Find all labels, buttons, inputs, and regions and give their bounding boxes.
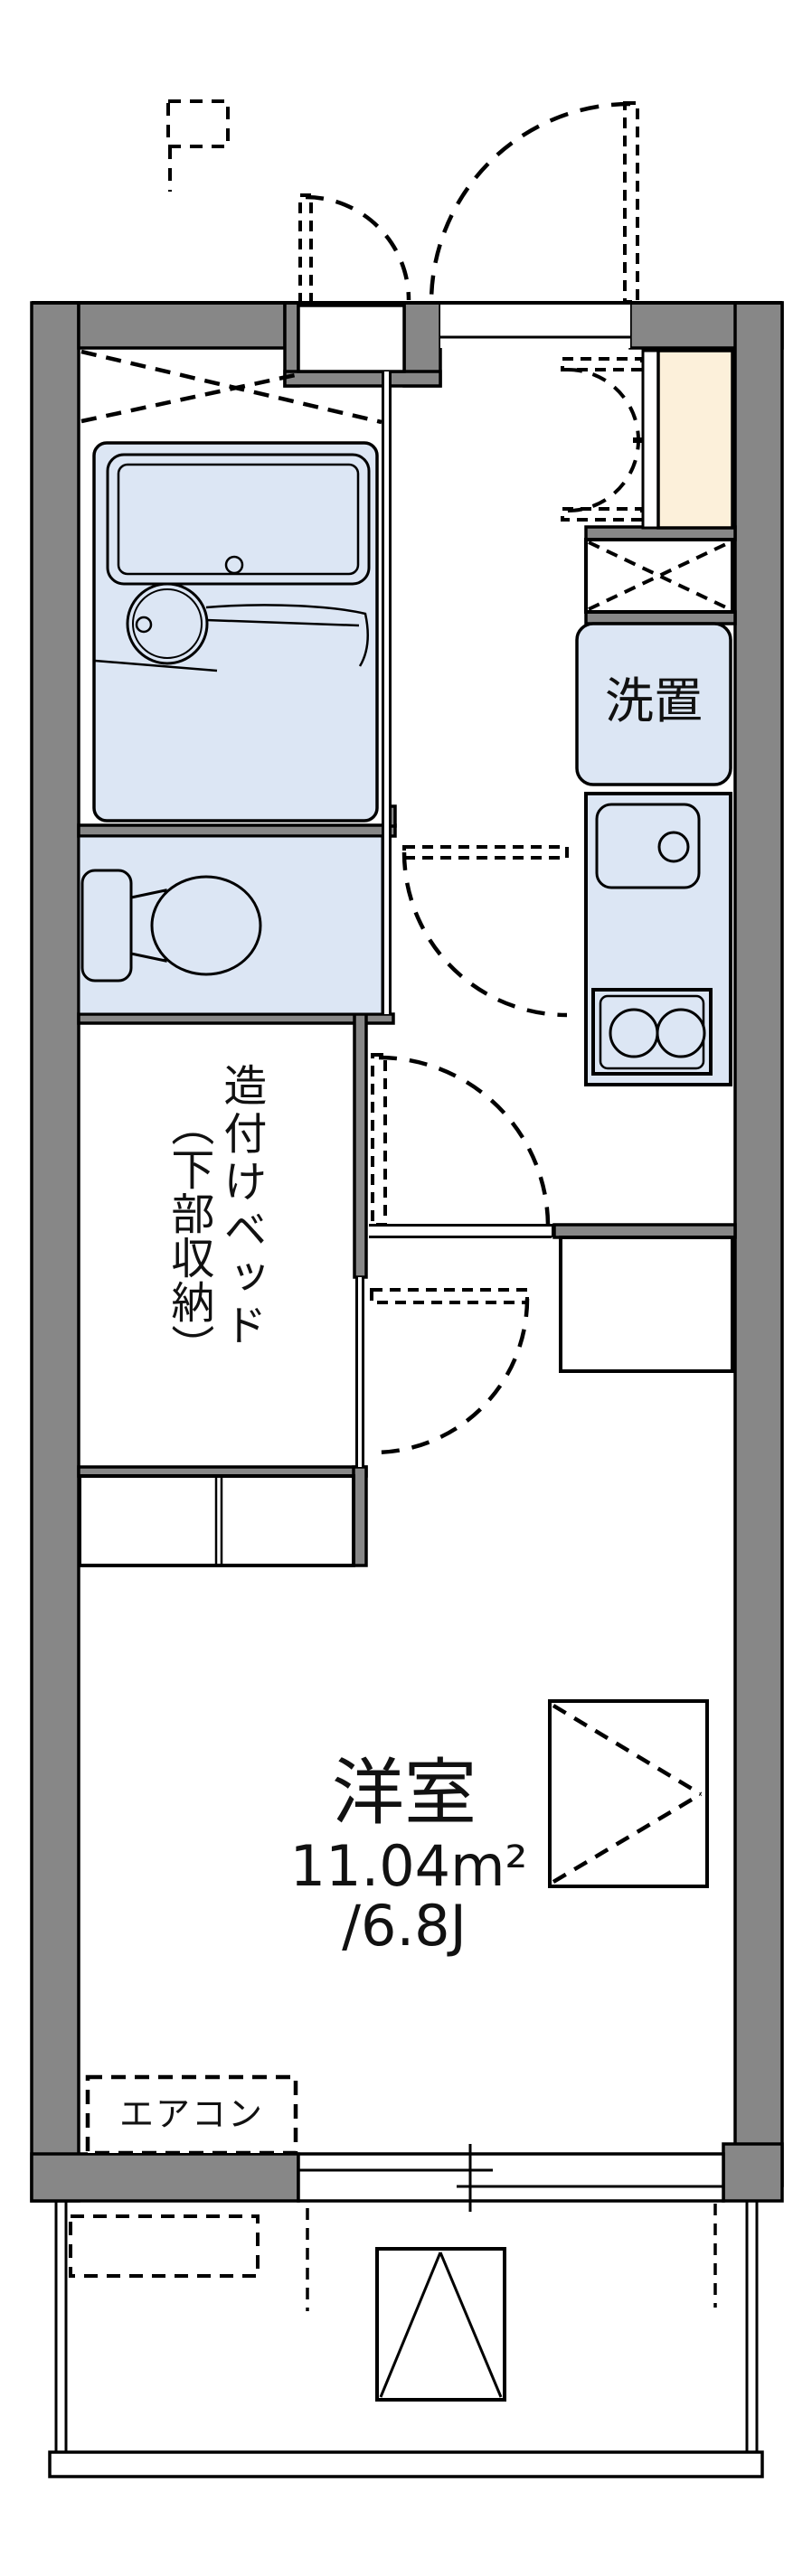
aircon-label: エアコン — [88, 2077, 296, 2153]
hall-door-swing — [404, 852, 567, 1015]
sliding-window — [298, 2144, 723, 2212]
bed-right-wall — [354, 1014, 366, 1277]
room-door-swing — [373, 1299, 527, 1453]
entrance-opening — [440, 305, 630, 348]
bed-counter — [80, 1476, 354, 1565]
room-door-leaf — [372, 1290, 527, 1302]
toilet-door-leaf — [373, 1055, 385, 1225]
front-door-swing — [431, 104, 630, 303]
exterior-dashed-details — [168, 101, 637, 303]
hall-door-leaf — [404, 847, 567, 858]
room-name-label: 洋室 — [260, 1755, 549, 1831]
toilet-door-swing — [379, 1058, 548, 1225]
refrigerator-space — [561, 1237, 732, 1371]
top-wall-left — [79, 303, 285, 348]
faucet — [659, 832, 688, 861]
kitchen — [586, 794, 731, 1085]
burner-left — [610, 1010, 657, 1057]
meter-box-door-swing — [306, 197, 409, 300]
bath-toilet-divider — [79, 825, 395, 836]
room-tatami-label: /6.8J — [260, 1896, 549, 1955]
bed-label-main: 造付けベッド — [218, 1063, 263, 1350]
tub-drain — [226, 557, 242, 573]
entry-porch — [298, 306, 404, 371]
washer-label: 洗置 — [563, 676, 744, 728]
evacuation-hatch — [377, 2249, 505, 2400]
floor-plan-drawing — [0, 0, 812, 2576]
burner-right — [657, 1010, 704, 1057]
basin-drain — [137, 617, 151, 632]
room-area-label: 11.04m² — [260, 1837, 558, 1895]
unit-bath — [94, 443, 377, 821]
floor-plan: 洗置 造付けベッド （下部収納） 洋室 11.04m² /6.8J エアコン — [0, 0, 812, 2576]
cabinet-track — [643, 351, 658, 528]
porch-floor-wall — [285, 371, 440, 386]
meter-box-door-leaf — [300, 195, 311, 302]
toilet-room — [79, 836, 382, 1014]
toilet-tank — [82, 870, 131, 981]
meter-storage-box — [586, 540, 732, 612]
corridor-room-divider — [554, 1225, 735, 1237]
bed-label-sub: （下部収納） — [165, 1103, 211, 1368]
toilet-bowl — [152, 877, 260, 974]
upper-hatch-dashed-box — [168, 101, 228, 146]
front-door-leaf — [625, 103, 637, 302]
balcony — [50, 2201, 762, 2477]
left-wall — [32, 303, 79, 2201]
interior-doors — [372, 847, 567, 1453]
right-wall — [735, 303, 782, 2186]
counter-right-post — [354, 1467, 366, 1565]
ac-outdoor-unit — [71, 2216, 258, 2276]
entry-double-closet — [562, 359, 645, 520]
closet-door-leaf-top — [562, 359, 642, 370]
bottom-right-pillar — [723, 2144, 782, 2201]
wall-storage-box — [550, 1701, 707, 1886]
shoe-cabinet — [658, 351, 732, 528]
bottom-wall-left — [32, 2154, 298, 2201]
balcony-slab — [50, 2452, 762, 2477]
